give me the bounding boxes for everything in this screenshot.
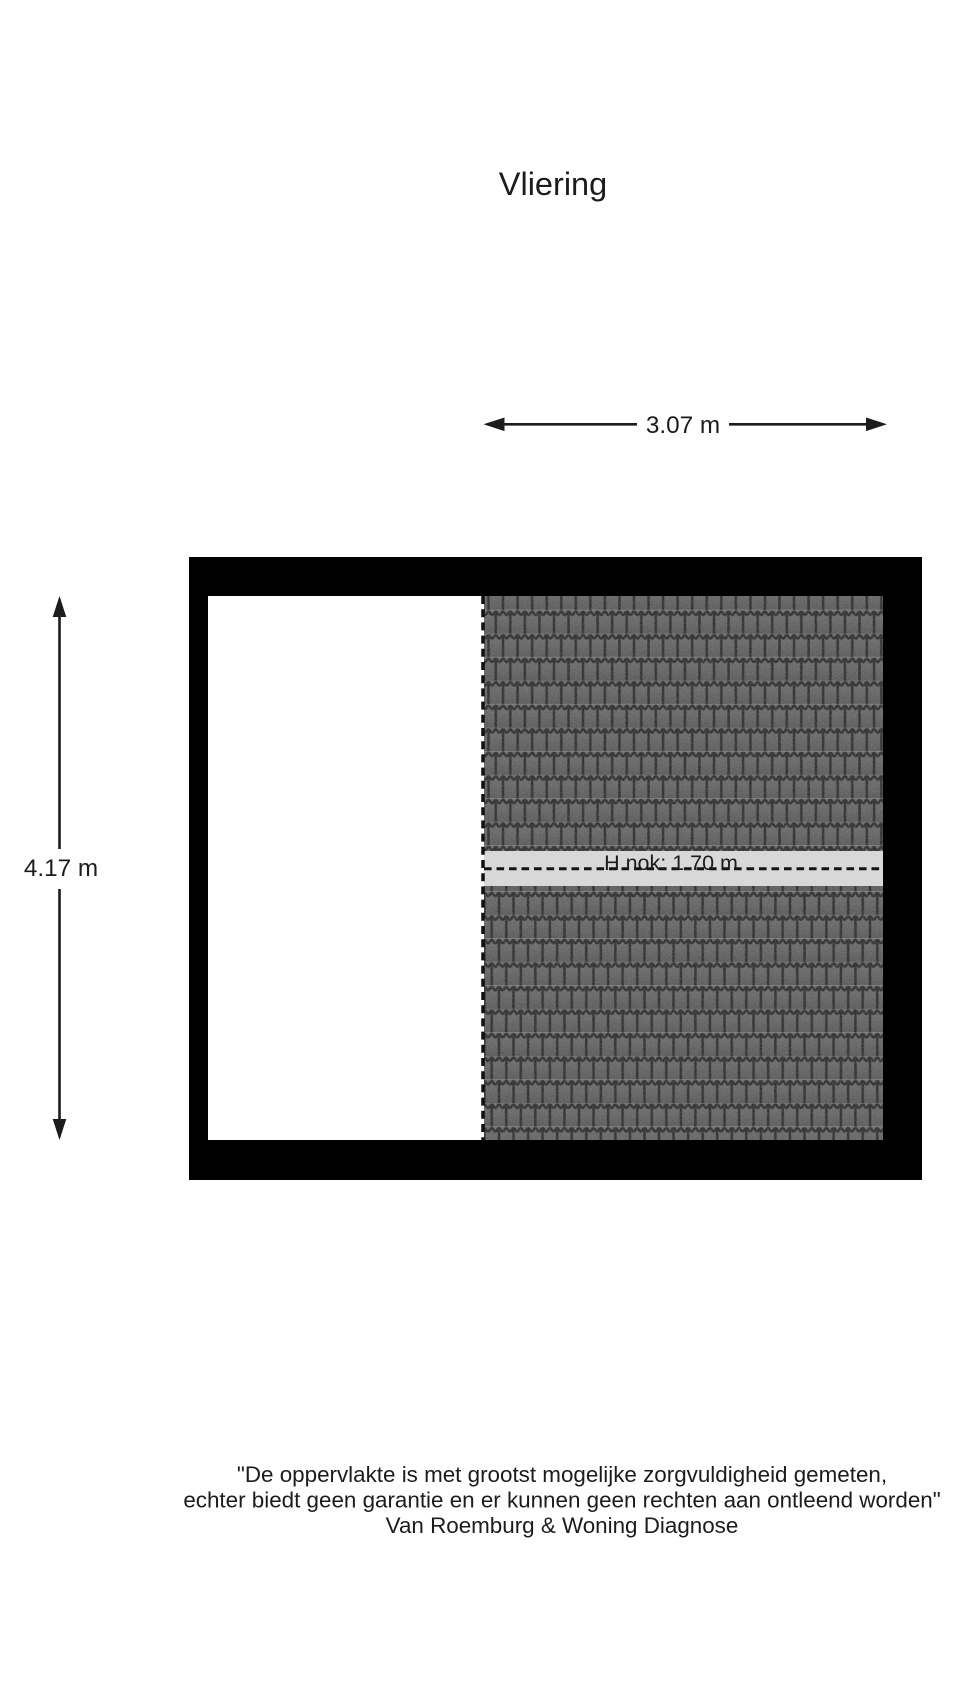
- svg-text:Van Roemburg & Woning Diagnose: Van Roemburg & Woning Diagnose: [386, 1513, 739, 1538]
- svg-text:Vliering: Vliering: [499, 166, 607, 202]
- svg-text:"De oppervlakte is met grootst: "De oppervlakte is met grootst mogelijke…: [237, 1462, 887, 1487]
- svg-text:echter biedt geen garantie en: echter biedt geen garantie en er kunnen …: [183, 1488, 940, 1513]
- svg-text:3.07 m: 3.07 m: [646, 412, 720, 439]
- svg-text:4.17 m: 4.17 m: [24, 855, 98, 882]
- svg-text:H nok: 1.70 m: H nok: 1.70 m: [604, 851, 738, 875]
